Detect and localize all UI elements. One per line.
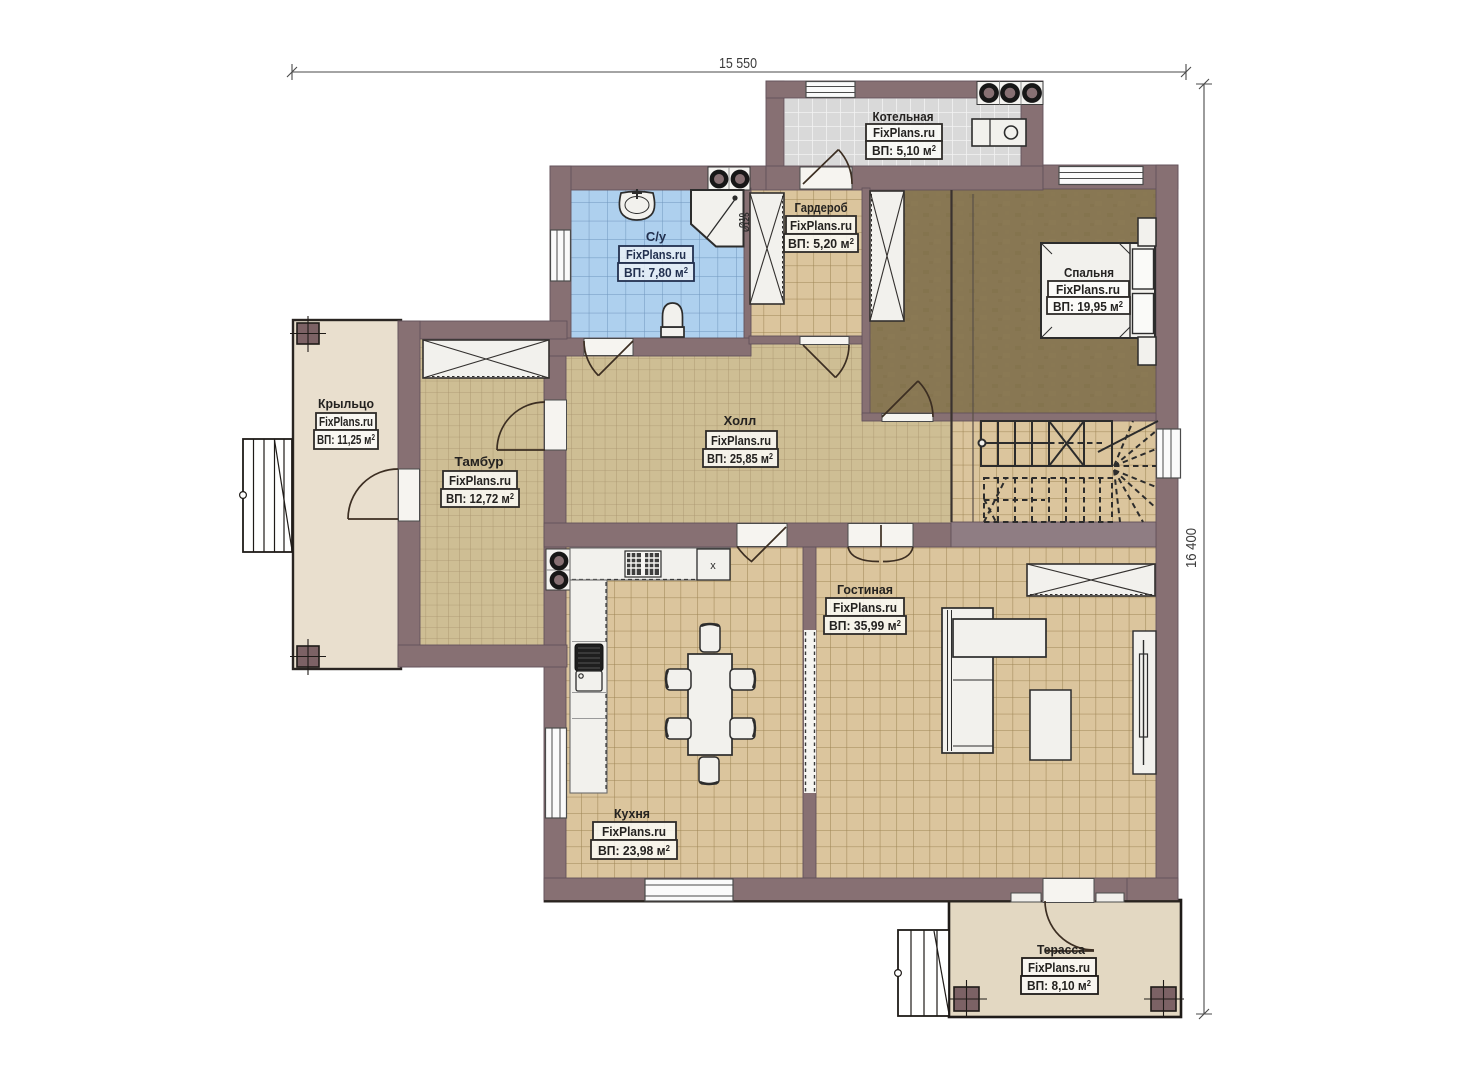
svg-text:FixPlans.ru: FixPlans.ru — [873, 126, 935, 140]
svg-text:С/у: С/у — [646, 229, 667, 244]
svg-text:ВП: 12,72 м2: ВП: 12,72 м2 — [446, 492, 515, 506]
svg-text:Холл: Холл — [724, 413, 757, 428]
svg-text:Спальня: Спальня — [1064, 265, 1114, 280]
svg-text:ВП: 7,80 м2: ВП: 7,80 м2 — [624, 266, 689, 280]
svg-text:Ø10: Ø10 — [738, 212, 747, 228]
svg-text:FixPlans.ru: FixPlans.ru — [319, 415, 373, 429]
svg-text:FixPlans.ru: FixPlans.ru — [711, 434, 771, 448]
svg-text:FixPlans.ru: FixPlans.ru — [1028, 961, 1090, 975]
svg-text:ВП: 25,85 м2: ВП: 25,85 м2 — [707, 452, 773, 466]
svg-text:x: x — [710, 560, 716, 572]
svg-text:Крыльцо: Крыльцо — [318, 396, 374, 411]
svg-text:Гостиная: Гостиная — [837, 582, 893, 597]
svg-text:ВП: 5,10 м2: ВП: 5,10 м2 — [872, 144, 937, 158]
svg-text:FixPlans.ru: FixPlans.ru — [626, 248, 686, 262]
svg-text:ВП: 19,95 м2: ВП: 19,95 м2 — [1053, 300, 1124, 314]
svg-text:ВП: 35,99 м2: ВП: 35,99 м2 — [829, 619, 902, 633]
svg-text:16 400: 16 400 — [1183, 528, 1200, 568]
svg-text:Гардероб: Гардероб — [795, 200, 848, 215]
svg-text:Терасса: Терасса — [1037, 942, 1086, 957]
svg-text:ВП: 5,20 м2: ВП: 5,20 м2 — [788, 237, 855, 251]
svg-text:ВП: 8,10 м2: ВП: 8,10 м2 — [1027, 979, 1092, 993]
svg-text:FixPlans.ru: FixPlans.ru — [1056, 283, 1120, 297]
svg-text:Тамбур: Тамбур — [455, 454, 504, 469]
svg-text:ВП: 11,25 м2: ВП: 11,25 м2 — [317, 433, 375, 447]
svg-text:15 550: 15 550 — [719, 55, 757, 72]
svg-text:FixPlans.ru: FixPlans.ru — [449, 474, 511, 488]
svg-text:FixPlans.ru: FixPlans.ru — [790, 219, 852, 233]
svg-text:Котельная: Котельная — [873, 109, 934, 124]
svg-text:FixPlans.ru: FixPlans.ru — [833, 601, 897, 615]
svg-text:FixPlans.ru: FixPlans.ru — [602, 825, 666, 839]
svg-text:ВП: 23,98 м2: ВП: 23,98 м2 — [598, 844, 671, 858]
svg-text:Кухня: Кухня — [614, 806, 650, 821]
